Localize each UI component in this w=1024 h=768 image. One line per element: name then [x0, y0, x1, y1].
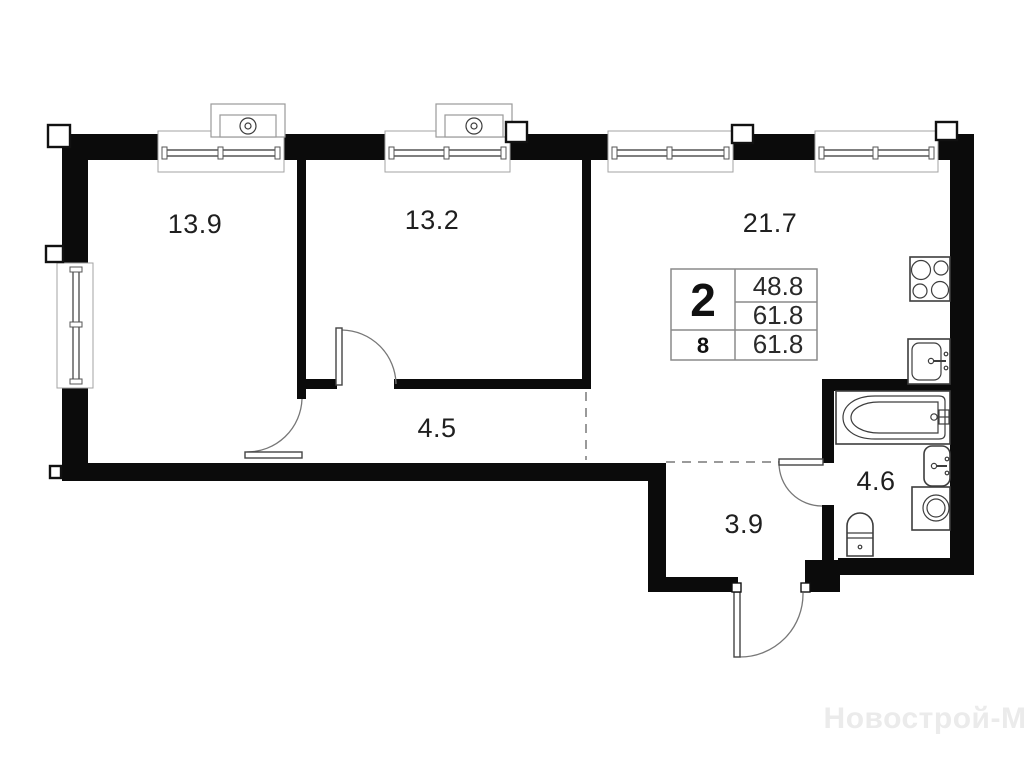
pillar-marker: [48, 125, 70, 147]
room-labels: 13.9 13.2 21.7 4.5 3.9 4.6: [168, 205, 896, 539]
door-jamb: [801, 583, 810, 592]
wall-corridor-top-left: [306, 379, 337, 389]
wall-hall-left: [648, 463, 666, 592]
door-jamb: [732, 583, 741, 592]
pillar-marker: [506, 122, 527, 142]
stove-icon: [910, 257, 950, 301]
living-area: 48.8: [753, 271, 804, 301]
wall-left-upper: [62, 134, 88, 265]
wall-right: [950, 134, 974, 575]
wall-top-2: [284, 134, 385, 160]
pillar-marker: [50, 466, 61, 478]
info-table: 2 48.8 61.8 8 61.8: [671, 269, 817, 360]
washing-machine-icon: [912, 487, 950, 530]
room-label-bedroom-1: 13.9: [168, 209, 223, 239]
door-leaf: [734, 592, 740, 657]
doors: [245, 328, 823, 657]
door-bedroom-1: [245, 399, 302, 458]
wall-hall-bottom: [648, 577, 738, 592]
air-conditioner-2: [436, 104, 512, 137]
door-leaf: [336, 328, 342, 385]
door-bathroom: [779, 459, 823, 506]
pillar-marker: [732, 125, 753, 143]
pillar-marker: [46, 246, 63, 262]
room-label-bathroom: 4.6: [856, 466, 895, 496]
floor-number: 8: [697, 333, 709, 358]
total-area: 61.8: [753, 300, 804, 330]
door-entrance: [732, 583, 810, 657]
room-label-living: 21.7: [743, 208, 798, 238]
pillar-marker: [936, 122, 957, 140]
wall-room1-room2: [297, 160, 306, 399]
wall-room2-living: [582, 160, 591, 389]
room-label-bedroom-2: 13.2: [405, 205, 460, 235]
window-4: [815, 131, 938, 172]
zone-dashed-lines: [586, 392, 779, 462]
room-label-hall: 3.9: [724, 509, 763, 539]
wall-corridor-top-right: [394, 379, 590, 389]
air-conditioner-1: [211, 104, 285, 137]
window-3: [608, 131, 733, 172]
walls: [62, 134, 974, 592]
bathtub-icon: [836, 391, 950, 444]
door-leaf: [779, 459, 823, 465]
wall-bath-west-lower: [822, 505, 834, 578]
wall-bath-west-upper: [822, 383, 834, 463]
wall-bottom-main: [62, 463, 663, 481]
room-label-corridor: 4.5: [417, 413, 456, 443]
floorplan-svg: 13.9 13.2 21.7 4.5 3.9 4.6 2 48.8 61.8 8…: [0, 0, 1024, 768]
floor-area: 61.8: [753, 329, 804, 359]
door-bedroom-2: [336, 328, 396, 385]
kitchen-sink-icon: [908, 339, 950, 384]
watermark-text: Новострой-М: [824, 702, 1024, 735]
toilet-icon: [847, 513, 873, 556]
door-leaf: [245, 452, 302, 458]
floorplan-canvas: 13.9 13.2 21.7 4.5 3.9 4.6 2 48.8 61.8 8…: [0, 0, 1024, 768]
rooms-count: 2: [690, 274, 716, 326]
wall-bath-bottom: [838, 558, 974, 575]
window-5-left: [57, 263, 93, 388]
pillar-markers: [46, 122, 957, 478]
washbasin-icon: [924, 446, 950, 486]
